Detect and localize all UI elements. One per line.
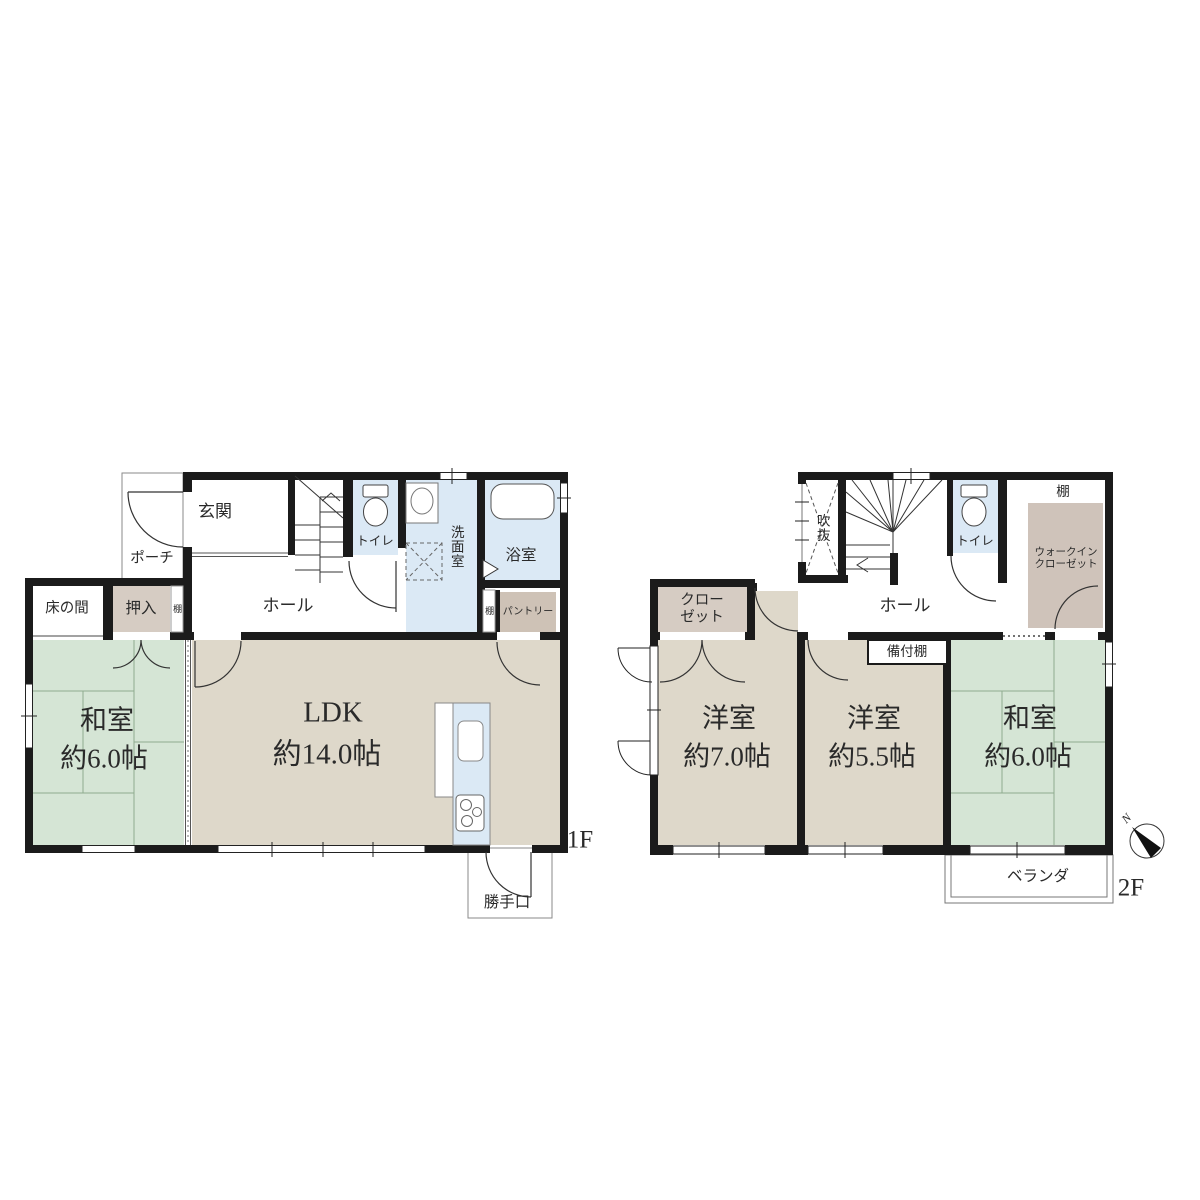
f2-shelf-label: 棚 bbox=[1056, 484, 1070, 500]
f1-backdoor-label: 勝手口 bbox=[484, 894, 531, 912]
f2-closet-label-line2: ゼット bbox=[680, 609, 724, 626]
f2-western2-size: 約5.5帖 bbox=[828, 741, 916, 772]
f2-void-window bbox=[795, 484, 809, 562]
f1-toilet-label: トイレ bbox=[356, 534, 394, 548]
f2-wic-label-line2: クローゼット bbox=[1035, 559, 1098, 571]
f1-sink-icon bbox=[406, 483, 438, 523]
f1-oshiire-label: 押入 bbox=[125, 600, 156, 618]
f1-toilet-icon bbox=[363, 485, 388, 526]
f1-washitsu-size: 約6.0帖 bbox=[60, 743, 148, 774]
f2-built-in-shelf-label: 備付棚 bbox=[887, 644, 928, 660]
f2-western2-name: 洋室 bbox=[847, 703, 901, 734]
f1-pantry-shelf-label: 棚 bbox=[484, 606, 494, 616]
f2-veranda-label: ベランダ bbox=[1007, 868, 1069, 886]
f2-wic-label: ウォークイン クローゼット bbox=[1035, 547, 1098, 571]
floor-plan-linework bbox=[0, 0, 1200, 1200]
f1-bathroom-label: 浴室 bbox=[505, 547, 536, 565]
f2-western1-size: 約7.0帖 bbox=[683, 741, 771, 772]
f1-entrance-label: 玄関 bbox=[198, 502, 232, 522]
f2-toilet-label: トイレ bbox=[956, 534, 994, 548]
f2-wic-label-line1: ウォークイン bbox=[1035, 547, 1098, 559]
f1-hall-shelf-label: 棚 bbox=[172, 604, 182, 614]
compass-icon bbox=[1130, 824, 1164, 858]
f2-western1-name: 洋室 bbox=[702, 703, 756, 734]
f1-washitsu-name: 和室 bbox=[80, 705, 134, 736]
f2-western1-nook bbox=[755, 591, 798, 640]
f1-sliding-partition bbox=[184, 640, 192, 845]
f1-bathtub-icon bbox=[491, 484, 554, 519]
f1-ldk-name: LDK bbox=[303, 696, 363, 729]
f1-washroom-label: 洗面室 bbox=[448, 525, 464, 569]
f1-entrance-step bbox=[192, 553, 288, 557]
f1-floor-label: 1F bbox=[567, 827, 593, 856]
f1-ldk-size: 約14.0帖 bbox=[273, 738, 382, 771]
f2-void-label: 吹抜 bbox=[814, 514, 830, 543]
floor-1f bbox=[21, 468, 571, 918]
f2-washitsu-size: 約6.0帖 bbox=[984, 741, 1072, 772]
f2-closet-label-line1: クロー bbox=[680, 592, 724, 609]
f2-floor-label: 2F bbox=[1118, 875, 1144, 904]
f1-pantry-label: パントリー bbox=[503, 606, 554, 618]
floor-2f bbox=[618, 468, 1164, 903]
f1-porch-label: ポーチ bbox=[130, 551, 174, 568]
floor-plan-page: ポーチ 玄関 ホール 床の間 押入 棚 トイレ 洗面室 浴室 棚 パントリー 和… bbox=[0, 0, 1200, 1200]
f1-hall-label: ホール bbox=[263, 596, 314, 616]
f1-stairs bbox=[295, 476, 343, 583]
f2-washitsu-name: 和室 bbox=[1003, 703, 1057, 734]
f2-closet-label: クロー ゼット bbox=[680, 592, 724, 625]
f2-toilet-icon bbox=[961, 485, 987, 526]
f2-hall-label: ホール bbox=[880, 596, 931, 616]
f1-tokonoma-label: 床の間 bbox=[45, 601, 89, 618]
